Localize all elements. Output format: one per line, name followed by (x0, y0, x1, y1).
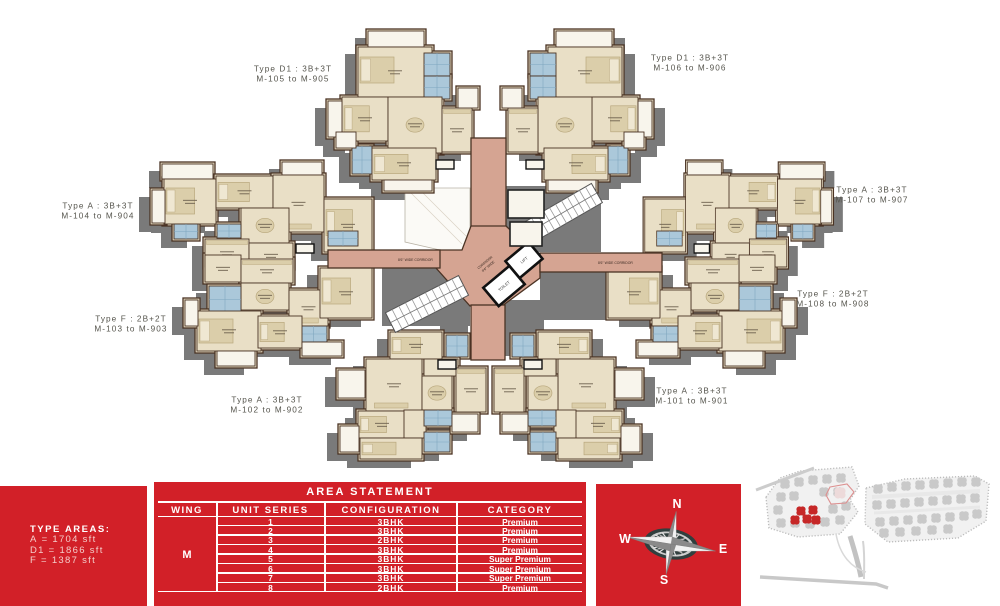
svg-text:Type F : 2B+2T: Type F : 2B+2T (797, 290, 869, 299)
svg-text:8'6" WIDE CORRIDOR: 8'6" WIDE CORRIDOR (598, 261, 633, 265)
svg-text:M-108 to M-908: M-108 to M-908 (796, 300, 869, 309)
svg-text:M-105 to M-905: M-105 to M-905 (256, 75, 329, 84)
svg-text:M-103 to M-903: M-103 to M-903 (94, 325, 167, 334)
svg-text:Type A : 3B+3T: Type A : 3B+3T (231, 396, 302, 405)
svg-text:Type A : 3B+3T: Type A : 3B+3T (656, 387, 727, 396)
svg-text:8'6" WIDE CORRIDOR: 8'6" WIDE CORRIDOR (398, 258, 433, 262)
svg-text:M-102 to M-902: M-102 to M-902 (230, 406, 303, 415)
svg-text:M-107 to M-907: M-107 to M-907 (835, 196, 908, 205)
svg-text:Type A : 3B+3T: Type A : 3B+3T (836, 186, 907, 195)
svg-text:Type D1 : 3B+3T: Type D1 : 3B+3T (254, 65, 332, 74)
svg-text:Type F : 2B+2T: Type F : 2B+2T (95, 315, 167, 324)
svg-text:Type A : 3B+3T: Type A : 3B+3T (62, 202, 133, 211)
svg-text:M-104 to M-904: M-104 to M-904 (61, 212, 134, 221)
svg-text:Type D1 : 3B+3T: Type D1 : 3B+3T (651, 54, 729, 63)
svg-text:M-101 to M-901: M-101 to M-901 (655, 397, 728, 406)
svg-text:M-106 to M-906: M-106 to M-906 (653, 64, 726, 73)
